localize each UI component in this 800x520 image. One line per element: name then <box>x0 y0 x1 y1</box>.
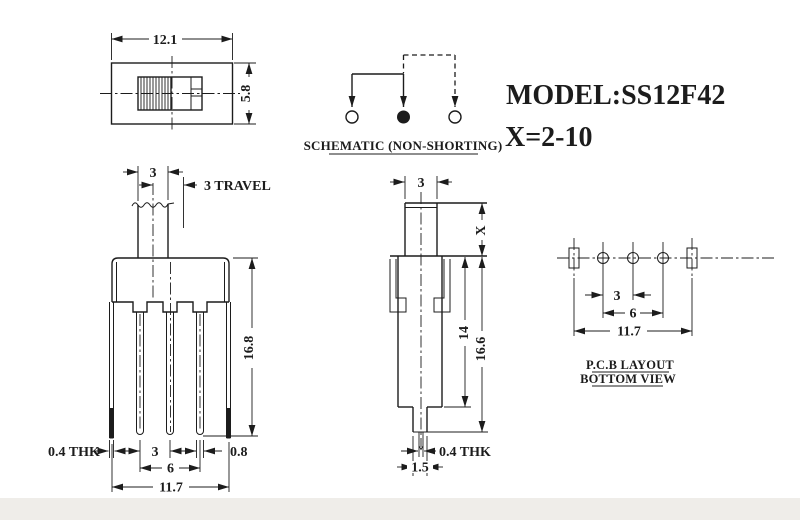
front-thickness-label: 0.4 THK <box>48 445 100 460</box>
pcb-pitch-dim: 3 <box>614 289 621 304</box>
pcb-caption-line1: P.C.B LAYOUT <box>586 358 674 372</box>
side-total-height-dim: 16.6 <box>474 337 489 362</box>
top-view: 12.1 5.8 <box>100 31 256 131</box>
side-knob-height-dim: X <box>474 225 489 235</box>
model-number: MODEL:SS12F42 <box>506 80 725 111</box>
bracket-hatch <box>227 408 231 438</box>
top-view-height-dim: 5.8 <box>239 85 254 103</box>
front-overall-dim: 11.7 <box>159 481 183 496</box>
pin <box>167 312 174 435</box>
schematic-caption: SCHEMATIC (NON-SHORTING) <box>304 138 503 153</box>
technical-drawing-canvas: 12.1 5.8 SCHEMATIC (NON-SHORTING) MODEL:… <box>0 0 800 520</box>
engineering-drawing-sheet: 12.1 5.8 SCHEMATIC (NON-SHORTING) MODEL:… <box>0 0 800 520</box>
title-block: MODEL:SS12F42 X=2-10 <box>505 80 725 153</box>
front-view: 3 3 TRAVEL 16.8 0.4 THK <box>48 166 271 496</box>
front-pin-width-dim: 0.8 <box>230 445 248 460</box>
top-view-width-dim: 12.1 <box>153 33 178 48</box>
pcb-overall-dim: 11.7 <box>617 325 641 340</box>
side-tip-width-dim: 1.5 <box>411 461 429 476</box>
front-knob-width-dim: 3 <box>150 166 157 181</box>
bracket-hatch <box>110 408 114 438</box>
side-thickness-label: 0.4 THK <box>439 445 491 460</box>
travel-label: 3 TRAVEL <box>204 179 271 194</box>
front-pitch-dim: 3 <box>152 445 159 460</box>
pcb-layout: 3 6 11.7 P.C.B LAYOUT BOTTOM VIEW <box>557 238 776 386</box>
pcb-caption-line2: BOTTOM VIEW <box>580 372 676 386</box>
terminal-open-left <box>346 111 358 123</box>
x-spec: X=2-10 <box>505 122 593 153</box>
side-view: 3 X 14 16.6 0.4 THK <box>390 176 491 476</box>
terminal-open-right <box>449 111 461 123</box>
schematic-diagram: SCHEMATIC (NON-SHORTING) <box>304 55 503 154</box>
side-knob-width-dim: 3 <box>418 176 425 191</box>
pcb-span-dim: 6 <box>630 307 637 322</box>
sheet-footer-band <box>0 498 800 520</box>
side-body-height-dim: 14 <box>457 326 472 340</box>
terminal-common-filled <box>397 111 410 124</box>
front-height-dim: 16.8 <box>242 336 257 361</box>
front-span-dim: 6 <box>167 462 174 477</box>
